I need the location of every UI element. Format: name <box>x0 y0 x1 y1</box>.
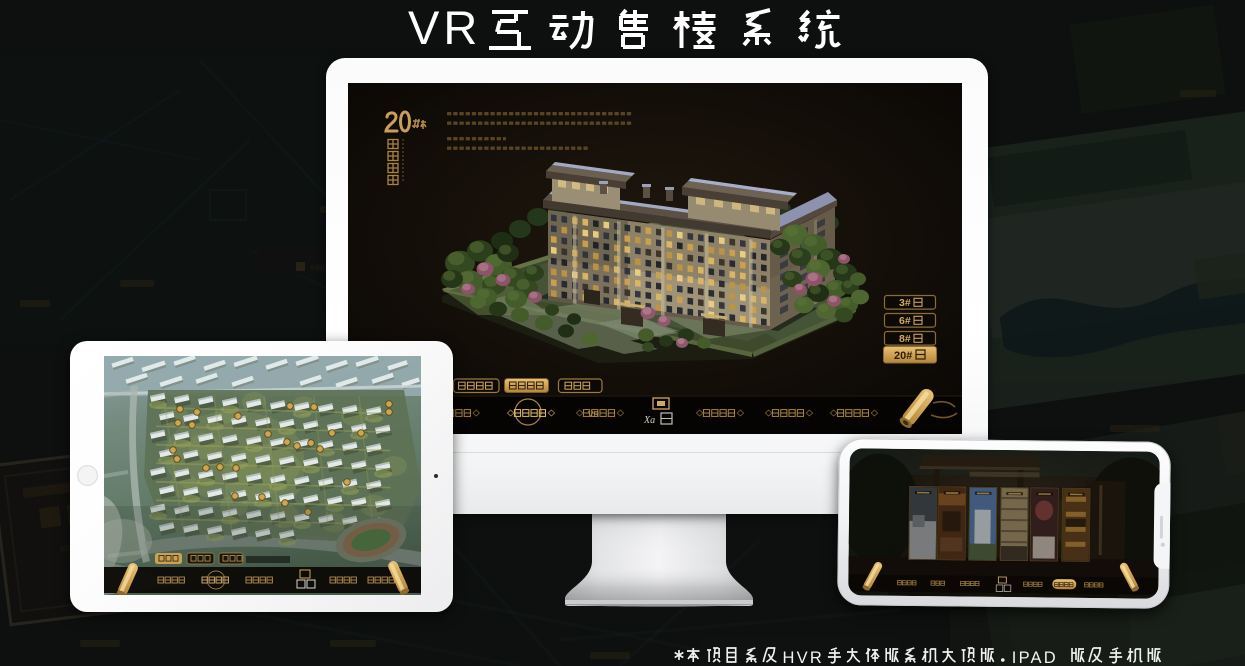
svg-text:Xa: Xa <box>643 415 655 426</box>
svg-text:VR: VR <box>588 410 599 419</box>
svg-text:VR: VR <box>408 1 481 54</box>
svg-text:6#: 6# <box>899 315 911 327</box>
svg-text:3#: 3# <box>899 297 911 309</box>
svg-text:20#: 20# <box>894 350 912 362</box>
svg-text:IPAD: IPAD <box>1012 649 1058 666</box>
svg-text:8#: 8# <box>899 333 911 345</box>
svg-text:HVR: HVR <box>783 649 824 666</box>
